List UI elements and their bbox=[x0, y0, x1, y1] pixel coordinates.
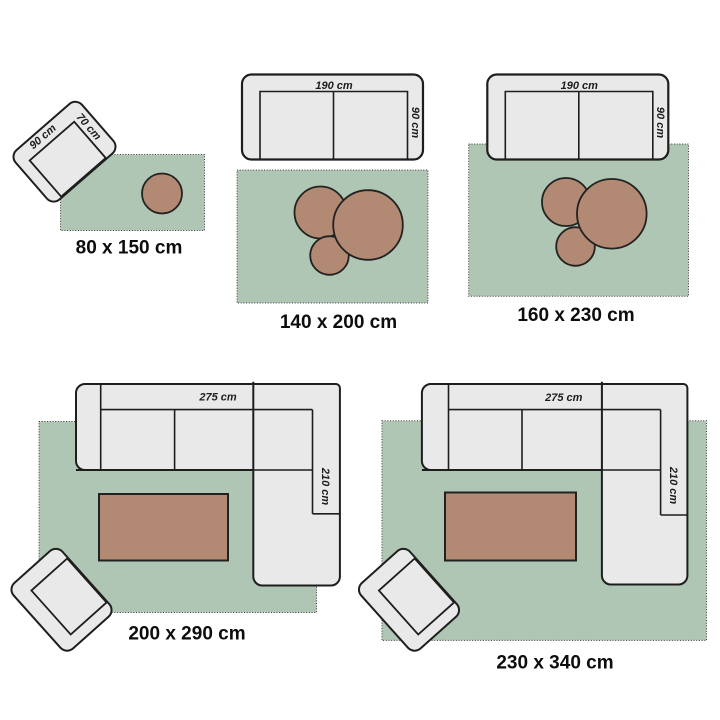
svg-text:80 x 150 cm: 80 x 150 cm bbox=[76, 238, 183, 259]
svg-text:230 x 340 cm: 230 x 340 cm bbox=[496, 653, 613, 674]
svg-text:90 cm: 90 cm bbox=[654, 107, 666, 138]
svg-text:140 x 200 cm: 140 x 200 cm bbox=[280, 312, 397, 333]
svg-text:200 x 290 cm: 200 x 290 cm bbox=[128, 624, 245, 645]
svg-text:190 cm: 190 cm bbox=[561, 80, 599, 92]
svg-text:160 x 230 cm: 160 x 230 cm bbox=[517, 305, 634, 326]
svg-text:90 cm: 90 cm bbox=[409, 107, 421, 138]
svg-text:210 cm: 210 cm bbox=[319, 467, 331, 506]
svg-text:275 cm: 275 cm bbox=[544, 392, 583, 404]
svg-text:210 cm: 210 cm bbox=[667, 466, 679, 505]
svg-text:275 cm: 275 cm bbox=[198, 392, 237, 404]
svg-text:190 cm: 190 cm bbox=[315, 80, 353, 92]
